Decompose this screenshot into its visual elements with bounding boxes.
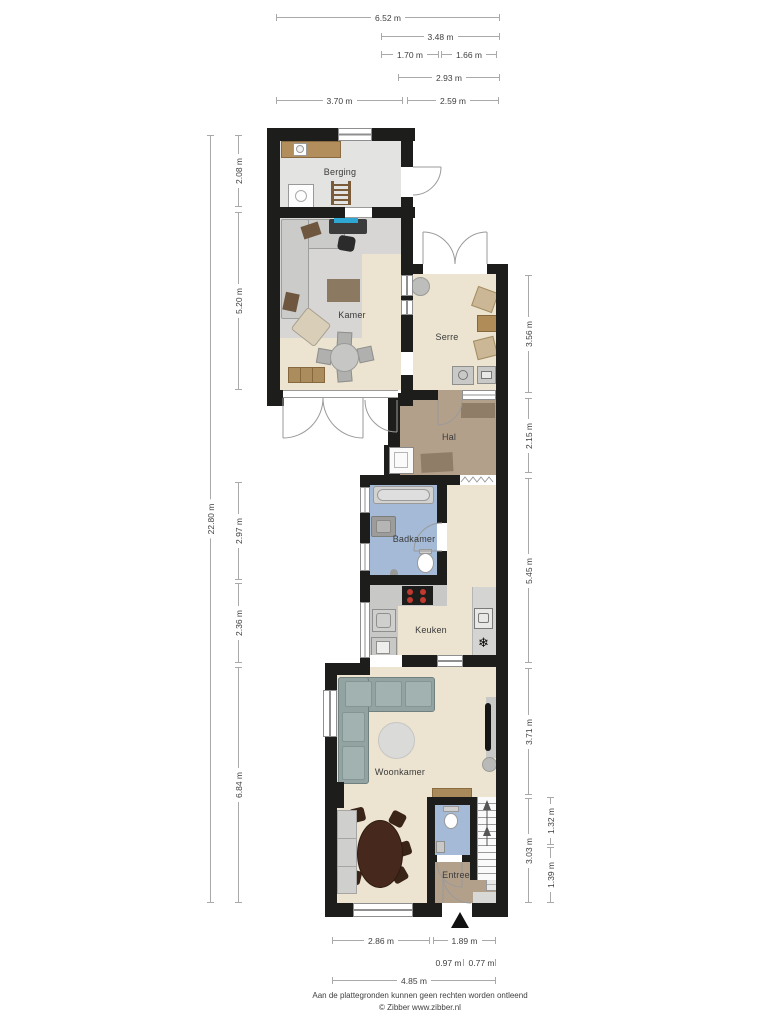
sideboard (288, 367, 325, 383)
dimension-label: 22.80 m (206, 500, 216, 539)
dimension-label: 2.36 m (234, 606, 244, 640)
doormat (461, 403, 495, 418)
dimension-label: 1.89 m (448, 936, 482, 946)
dimension-label: 3.71 m (524, 715, 534, 749)
disclaimer-line1: Aan de plattegronden kunnen geen rechten… (250, 990, 590, 1002)
dimension-label: 1.39 m (546, 858, 556, 892)
door-arc (413, 167, 441, 195)
wall (402, 655, 437, 667)
computer-monitor-icon (334, 218, 358, 223)
sofa-cushion (342, 712, 365, 742)
door-arc (423, 232, 455, 264)
sideboard (337, 810, 357, 894)
dimension-label: 5.20 m (234, 284, 244, 318)
side-table (482, 757, 497, 772)
sofa-cushion (405, 681, 432, 707)
door-opening (437, 855, 462, 862)
wall (496, 655, 508, 915)
window (360, 602, 370, 658)
dimension-line: 3.70 m (276, 100, 403, 101)
side-table (411, 277, 430, 296)
dimension-line: 6.84 m (238, 667, 239, 903)
dimension-line: 3.71 m (528, 668, 529, 795)
dimension-label: 2.15 m (524, 419, 534, 453)
wall (360, 575, 447, 585)
passage-opening (460, 475, 496, 485)
laundry-basket-inner-icon (481, 371, 492, 379)
dimension-label: 2.93 m (432, 73, 466, 83)
door-opening (370, 655, 402, 667)
dimension-label: 3.48 m (424, 32, 458, 42)
dimension-line: 2.08 m (238, 135, 239, 207)
window (401, 300, 413, 315)
stove-burner (407, 597, 413, 603)
room-label-hal: Hal (442, 432, 456, 442)
washing-machine-drum-icon (296, 145, 304, 153)
staircase (477, 797, 497, 880)
room-label-berging: Berging (324, 167, 356, 177)
desk-chair (337, 235, 356, 253)
window (360, 543, 370, 571)
garden-doors-opening (283, 390, 398, 398)
dimension-line: 2.36 m (238, 583, 239, 663)
dining-table-oval (357, 820, 403, 888)
bathtub-basin (377, 489, 430, 501)
toilet-tank (443, 806, 459, 812)
dimension-label: 2.08 m (234, 154, 244, 188)
stove-burner (420, 589, 426, 595)
workbench (281, 141, 341, 158)
window (401, 275, 413, 296)
dimension-label: 0.97 m (432, 958, 466, 968)
dimension-label: 5.45 m (524, 554, 534, 588)
door-arc (323, 398, 363, 438)
sofa-chaise-cushion (342, 746, 365, 780)
wall (470, 797, 477, 880)
stove-burner (407, 589, 413, 595)
dimension-label: 1.70 m (393, 50, 427, 60)
bathroom-sink-basin (376, 520, 391, 533)
dimension-line: 3.56 m (528, 275, 529, 393)
door-arc (455, 232, 487, 264)
appliance-drum-icon (295, 190, 307, 202)
dimension-line: 4.85 m (332, 980, 496, 981)
wall (401, 128, 413, 274)
wall (401, 390, 438, 400)
dimension-line: 5.20 m (238, 212, 239, 390)
dimension-label: 6.52 m (371, 13, 405, 23)
dimension-line: 2.59 m (407, 100, 499, 101)
keuken-floor (447, 483, 496, 585)
dimension-line: 1.70 m (381, 54, 439, 55)
dimension-label: 6.84 m (234, 768, 244, 802)
washing-machine-drum-icon (458, 370, 468, 380)
toilet-sink (436, 841, 445, 853)
passage-opening (401, 352, 413, 375)
dimension-label: 3.70 m (323, 96, 357, 106)
dimension-line: 2.93 m (398, 77, 500, 78)
room-label-kamer: Kamer (338, 310, 366, 320)
sofa-cushion (375, 681, 402, 707)
door-opening (437, 523, 447, 551)
dimension-line: 22.80 m (210, 135, 211, 903)
wall (496, 264, 508, 667)
dimension-label: 4.85 m (397, 976, 431, 986)
window (360, 487, 370, 513)
room-label-serre: Serre (435, 332, 458, 342)
window (338, 128, 372, 141)
disclaimer-line2: © Zibber www.zibber.nl (250, 1002, 590, 1014)
dimension-line: 0.97 m (433, 962, 464, 963)
window (353, 903, 413, 917)
dimension-label: 0.77 m (465, 958, 499, 968)
hal-door-threshold (438, 390, 462, 400)
rug (327, 279, 360, 302)
tv-screen (485, 703, 491, 751)
window (437, 655, 463, 667)
dining-table (330, 343, 359, 372)
dining-chair (357, 346, 375, 364)
window (462, 390, 496, 400)
dimension-line: 6.52 m (276, 17, 500, 18)
cabinet (477, 315, 497, 332)
doormat (421, 452, 454, 473)
wall (267, 390, 284, 406)
freezer-snowflake-icon: ❄ (474, 631, 493, 654)
wall (267, 128, 280, 406)
front-door-opening (442, 903, 472, 917)
toilet-bowl (444, 813, 458, 829)
wall (267, 207, 415, 218)
disclaimer: Aan de plattegronden kunnen geen rechten… (250, 990, 590, 1013)
room-label-woonkamer: Woonkamer (375, 767, 425, 777)
room-label-keuken: Keuken (415, 625, 447, 635)
dishwasher-inner-icon (376, 613, 391, 628)
rug (378, 722, 415, 759)
dimension-label: 1.66 m (452, 50, 486, 60)
room-label-badkamer: Badkamer (393, 534, 436, 544)
window (323, 690, 337, 737)
dimension-line: 2.86 m (332, 940, 430, 941)
door-arc (283, 398, 323, 438)
dimension-line: 2.15 m (528, 398, 529, 473)
dimension-line: 1.66 m (441, 54, 497, 55)
ladder-icon (331, 181, 351, 205)
dimension-label: 3.03 m (524, 834, 534, 868)
dimension-label: 2.97 m (234, 514, 244, 548)
dimension-label: 1.32 m (546, 804, 556, 838)
dimension-label: 2.86 m (364, 936, 398, 946)
dimension-line: 3.48 m (381, 36, 500, 37)
stove-burner (420, 597, 426, 603)
dimension-line: 0.77 m (467, 962, 496, 963)
dimension-line: 1.39 m (550, 847, 551, 903)
chimney-nook (337, 782, 344, 808)
door-opening (401, 167, 413, 197)
dimension-line: 3.03 m (528, 798, 529, 903)
oven-door-icon (478, 613, 489, 623)
stove (402, 586, 433, 605)
water-heater-icon (394, 452, 408, 468)
dimension-label: 2.59 m (436, 96, 470, 106)
dimension-line: 1.32 m (550, 797, 551, 845)
dimension-line: 5.45 m (528, 478, 529, 663)
dimension-label: 3.56 m (524, 317, 534, 351)
dimension-line: 2.97 m (238, 482, 239, 580)
sofa-cushion (345, 681, 372, 707)
room-label-entree: Entree (442, 870, 470, 880)
dimension-line: 1.89 m (433, 940, 496, 941)
passage-opening (345, 207, 372, 218)
floorplan-page: ❄ (0, 0, 768, 1024)
toilet-bowl (417, 553, 434, 573)
wall (427, 797, 435, 905)
kitchen-sink-basin (376, 641, 390, 654)
doormat (473, 892, 496, 903)
